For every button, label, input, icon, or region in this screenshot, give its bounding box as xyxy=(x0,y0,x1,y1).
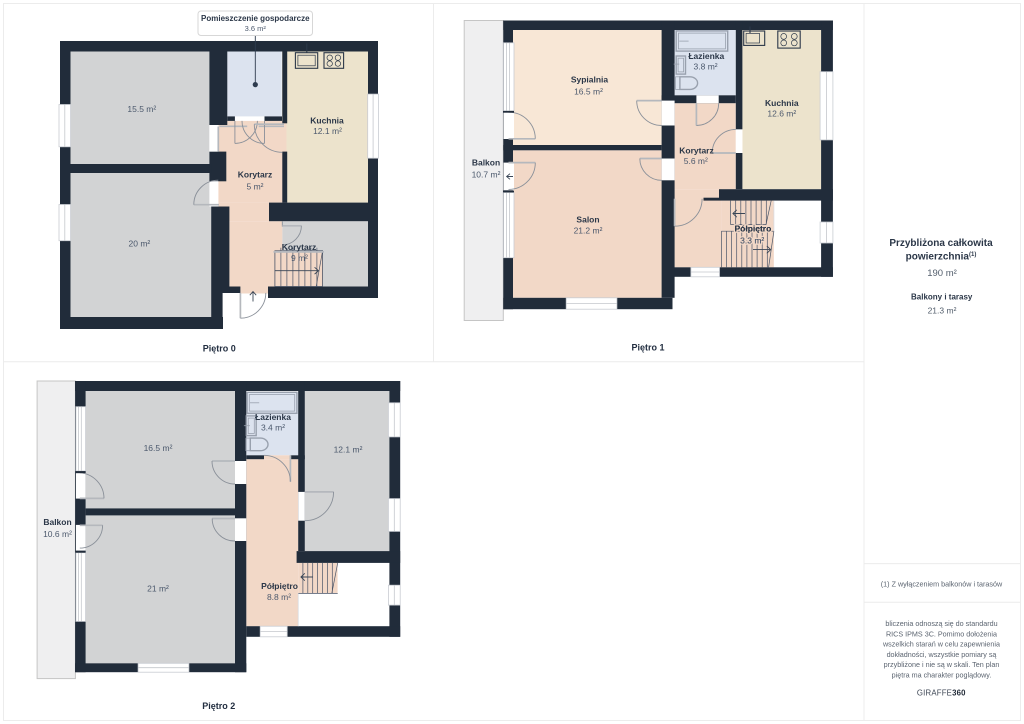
svg-text:bliczenia odnoszą się do stand: bliczenia odnoszą się do standardu xyxy=(885,619,997,628)
svg-text:Balkony i tarasy: Balkony i tarasy xyxy=(911,293,973,302)
svg-text:190 m²: 190 m² xyxy=(927,268,957,279)
svg-text:Sypialnia: Sypialnia xyxy=(571,75,609,85)
svg-text:piętra ma charakter poglądowy.: piętra ma charakter poglądowy. xyxy=(892,671,992,680)
svg-text:12.6 m²: 12.6 m² xyxy=(767,109,796,119)
svg-text:15.5 m²: 15.5 m² xyxy=(127,104,156,114)
svg-text:Kuchnia: Kuchnia xyxy=(310,116,344,126)
svg-text:(1) Z wyłączeniem balkonów i t: (1) Z wyłączeniem balkonów i tarasów xyxy=(881,580,1003,589)
svg-text:Półpiętro: Półpiętro xyxy=(261,581,298,591)
svg-text:10.7 m²: 10.7 m² xyxy=(472,170,501,180)
svg-text:wszelkich starań w celu zapewn: wszelkich starań w celu zapewnienia xyxy=(882,640,1000,649)
svg-text:Korytarz: Korytarz xyxy=(679,145,713,155)
svg-text:Kuchnia: Kuchnia xyxy=(765,98,799,108)
svg-text:powierzchnia(1): powierzchnia(1) xyxy=(906,252,977,263)
svg-text:RICS IPMS 3C. Pomimo dołożenia: RICS IPMS 3C. Pomimo dołożenia xyxy=(886,629,997,638)
svg-text:8.8 m²: 8.8 m² xyxy=(267,592,291,602)
svg-text:dokładności, wszystkie pomiary: dokładności, wszystkie pomiary są xyxy=(887,650,997,659)
svg-text:20 m²: 20 m² xyxy=(129,238,151,248)
svg-text:Balkon: Balkon xyxy=(472,158,500,168)
svg-text:Piętro 2: Piętro 2 xyxy=(202,701,235,711)
svg-text:3.6 m²: 3.6 m² xyxy=(245,24,267,33)
svg-text:12.1 m²: 12.1 m² xyxy=(313,126,342,136)
svg-text:Półpiętro: Półpiętro xyxy=(734,224,771,234)
svg-text:Łazienka: Łazienka xyxy=(255,412,291,422)
svg-text:3.4 m²: 3.4 m² xyxy=(261,423,285,433)
svg-text:9 m²: 9 m² xyxy=(291,253,308,263)
svg-text:Salon: Salon xyxy=(576,215,599,225)
svg-text:Piętro 0: Piętro 0 xyxy=(203,344,236,354)
svg-text:Korytarz: Korytarz xyxy=(238,170,272,180)
svg-text:16.5 m²: 16.5 m² xyxy=(144,443,173,453)
svg-text:10.6 m²: 10.6 m² xyxy=(43,529,72,539)
svg-text:Piętro 1: Piętro 1 xyxy=(631,343,664,353)
svg-text:Łazienka: Łazienka xyxy=(688,51,724,61)
svg-text:3.3 m²: 3.3 m² xyxy=(740,235,764,245)
svg-text:5.6 m²: 5.6 m² xyxy=(684,156,708,166)
svg-text:16.5 m²: 16.5 m² xyxy=(574,87,603,97)
svg-text:Korytarz: Korytarz xyxy=(282,242,316,252)
svg-text:GIRAFFE360: GIRAFFE360 xyxy=(917,689,966,698)
svg-text:21 m²: 21 m² xyxy=(147,584,169,594)
svg-text:21.3 m²: 21.3 m² xyxy=(928,306,957,316)
svg-text:3.8 m²: 3.8 m² xyxy=(694,62,718,72)
svg-text:21.2 m²: 21.2 m² xyxy=(574,226,603,236)
svg-text:przybliżone i nie są w skali.: przybliżone i nie są w skali. Ten plan xyxy=(884,660,1000,669)
svg-text:Przybliżona całkowita: Przybliżona całkowita xyxy=(889,238,993,249)
svg-text:12.1 m²: 12.1 m² xyxy=(334,445,363,455)
svg-text:5 m²: 5 m² xyxy=(247,182,264,192)
svg-text:Balkon: Balkon xyxy=(43,517,71,527)
svg-text:Pomieszczenie gospodarcze: Pomieszczenie gospodarcze xyxy=(201,14,310,23)
